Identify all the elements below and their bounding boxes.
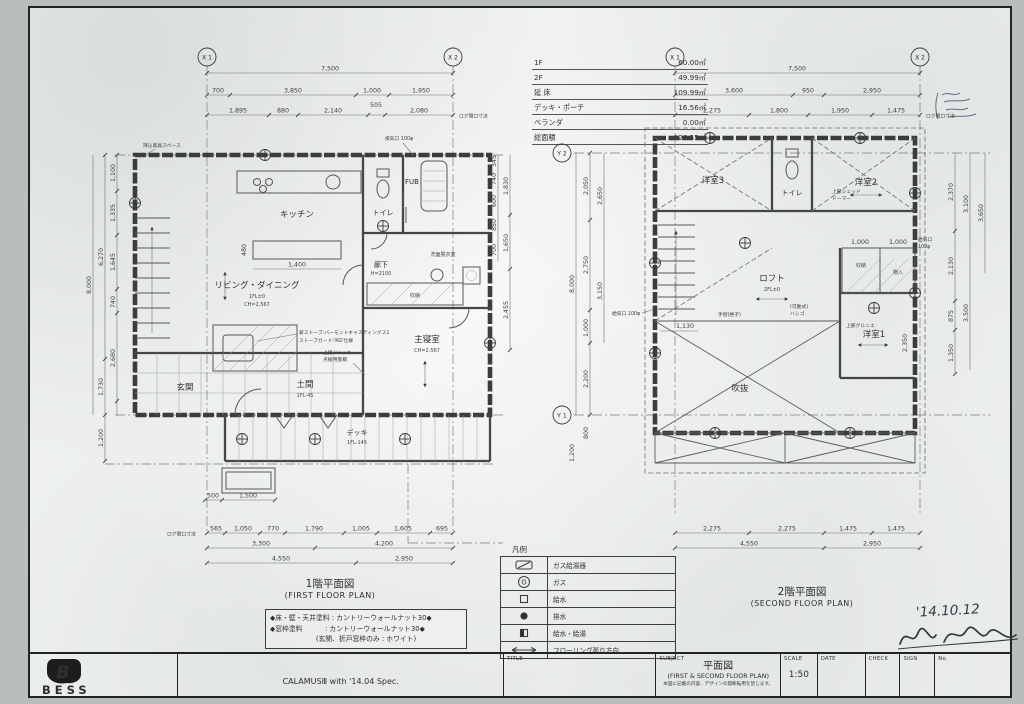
svg-text:3,600: 3,600 (725, 88, 743, 95)
svg-text:3,100: 3,100 (963, 195, 970, 213)
drain-icon (501, 608, 548, 624)
svg-text:CH=2,567: CH=2,567 (244, 302, 270, 308)
svg-text:1,100: 1,100 (110, 164, 117, 182)
sign-cell: SIGN (899, 654, 934, 696)
legend: 凡例 ガス給湯器 G ガス 給水 排水 給 (500, 544, 676, 659)
svg-text:565: 565 (210, 526, 222, 533)
svg-text:4,200: 4,200 (375, 541, 393, 548)
second-floor-plan-title: 2階平面図 (SECOND FLOOR PLAN) (652, 586, 952, 609)
gas-icon: G (501, 574, 548, 590)
room-label-bedroom3: 洋室3 (702, 175, 724, 186)
title-block: B BESS CALAMUSⅢ with '14.04 Spec. TITLE … (30, 652, 1010, 696)
svg-text:1,350: 1,350 (948, 344, 955, 362)
svg-text:2,080: 2,080 (410, 108, 428, 115)
svg-text:G: G (521, 579, 526, 587)
svg-text:2,455: 2,455 (503, 301, 510, 319)
svg-text:770: 770 (267, 526, 279, 533)
legend-row: 排水 (501, 608, 675, 625)
area-label: 延 床 (534, 88, 551, 98)
grid-mark-y1: Y 1 (556, 413, 567, 420)
svg-text:4,550: 4,550 (740, 541, 758, 548)
svg-text:2,275: 2,275 (703, 526, 721, 533)
svg-text:2,140: 2,140 (324, 108, 342, 115)
grenier-note: 上部グルニエ (846, 322, 875, 329)
dimensions-bottom: 565 1,050 770 1,790 1,005 1,605 695 ログ間口… (167, 526, 455, 566)
legend-row: 給水・給湯 (501, 625, 675, 642)
svg-text:1,475: 1,475 (839, 526, 857, 533)
dimensions-top: 7,500 700 3,850 1,000 1,950 1,895 880 2,… (205, 66, 488, 120)
kitchen-fixtures: 1,400 480 (237, 171, 361, 269)
first-floor-plan-title: 1階平面図 (FIRST FLOOR PLAN) (180, 578, 480, 601)
svg-text:2,200: 2,200 (583, 370, 590, 388)
svg-text:ドーマー: ドーマー (832, 196, 851, 202)
svg-text:H=2100: H=2100 (371, 271, 392, 277)
svg-text:1,000: 1,000 (363, 88, 381, 95)
staircase (135, 218, 170, 338)
svg-text:1,830: 1,830 (503, 177, 510, 195)
dormer-note: 上部シェッド (832, 188, 861, 195)
stove-note: 薪ストーブ:バーモントキャスティングス1 (299, 329, 389, 336)
plan1-walls (135, 155, 490, 415)
svg-text:CH=2,567: CH=2,567 (414, 348, 440, 354)
grid-mark-x1: X 1 (202, 55, 212, 62)
hot-cold-water-icon (501, 625, 548, 641)
grid-mark-x2: X 2 (448, 55, 458, 62)
toilet-fixture (786, 149, 798, 179)
svg-text:1,895: 1,895 (229, 108, 247, 115)
deck-area: 500 1,500 (105, 415, 503, 543)
svg-text:2FL±0: 2FL±0 (764, 287, 780, 293)
svg-text:4,550: 4,550 (272, 556, 290, 563)
legend-title: 凡例 (512, 544, 676, 555)
room-label-closet: 収納 (410, 292, 420, 299)
room-label-toilet: トイレ (373, 209, 394, 217)
svg-text:1FL±0: 1FL±0 (249, 294, 265, 300)
product-cell: CALAMUSⅢ with '14.04 Spec. (177, 654, 503, 696)
first-floor-plan-drawing: X 1 X 2 7,500 700 3,850 1,000 1,950 1,89… (85, 43, 520, 618)
title-cell: TITLE (503, 654, 655, 696)
void-and-balcony (655, 321, 915, 463)
plan2-room-labels: 洋室3 洋室2 トイレ ロフト 2FL±0 洋室1 吹抜 収納 物入 (702, 175, 903, 394)
grid-mark-y2: Y 2 (556, 151, 567, 158)
svg-text:1,000: 1,000 (889, 239, 907, 246)
svg-text:2,950: 2,950 (863, 541, 881, 548)
furniture-note: 持込家具スペース (143, 142, 181, 149)
svg-text:505: 505 (370, 102, 382, 109)
svg-text:1,400: 1,400 (288, 262, 306, 269)
svg-text:2,050: 2,050 (583, 177, 590, 195)
svg-text:740: 740 (110, 296, 117, 308)
svg-text:2,275: 2,275 (778, 526, 796, 533)
room-label-loft: ロフト (759, 274, 785, 284)
area-label: 2F (534, 73, 543, 83)
room-label-void: 吹抜 (731, 383, 749, 394)
svg-text:2,350: 2,350 (902, 334, 909, 352)
svg-text:1,500: 1,500 (239, 493, 257, 500)
svg-text:1,950: 1,950 (412, 88, 430, 95)
svg-text:1,000: 1,000 (583, 319, 590, 337)
room-label-bedroom1: 洋室1 (863, 329, 885, 340)
svg-text:1,605: 1,605 (394, 526, 412, 533)
log-opening-note: ログ間口寸法 (167, 531, 196, 538)
jack-note: 点検用蓋箱 (323, 356, 347, 363)
svg-text:1,475: 1,475 (887, 526, 905, 533)
bess-logo-icon: B (44, 657, 84, 685)
plan1-room-labels: キッチン リビング・ダイニング 1FL±0 CH=2,567 主寝室 CH=2,… (176, 178, 455, 446)
water-supply-icon (501, 591, 548, 607)
dimensions-left: 8,000 6,270 1,730 1,200 1,100 1,335 1,64… (86, 153, 119, 463)
exhaust-vent-note: 排気口 100φ (385, 135, 413, 142)
svg-text:1,200: 1,200 (569, 444, 576, 462)
drawing-sheet: 1F 60.00㎡ 2F 49.99㎡ 延 床 109.99㎡ デッキ・ポーチ … (28, 6, 1012, 698)
svg-text:ハシゴ: ハシゴ (790, 310, 805, 317)
room-label-genkan: 玄関 (176, 382, 193, 393)
plan2-walls (645, 128, 925, 473)
svg-text:3,650: 3,650 (978, 204, 985, 222)
svg-text:875: 875 (948, 310, 955, 322)
ladder-note: (可動式) (790, 303, 808, 310)
svg-text:7,500: 7,500 (788, 66, 806, 73)
handwritten-signature (890, 618, 1024, 656)
room-label-toilet: トイレ (782, 189, 803, 197)
finish-spec-notes: ◆床・壁・天井塗料 : カントリーウォールナット30◆ ◆窓枠塗料 : カントリ… (265, 609, 467, 649)
room-label-kitchen: キッチン (280, 210, 314, 220)
svg-text:100φ: 100φ (918, 244, 930, 250)
svg-text:800: 800 (583, 427, 590, 439)
grid-mark-x1: X 1 (670, 55, 680, 62)
subject-cell: SUBJECT 平面図 (FIRST & SECOND FLOOR PLAN) … (655, 654, 779, 696)
room-label-bath: FUB (405, 178, 419, 186)
legend-row: ガス給湯器 (501, 557, 675, 574)
svg-text:1,000: 1,000 (851, 239, 869, 246)
room-label-washroom: 洗面脱衣室 (430, 251, 455, 258)
svg-text:1,800: 1,800 (770, 108, 788, 115)
date-cell: DATE (817, 654, 865, 696)
svg-text:6,270: 6,270 (98, 248, 105, 266)
number-cell: No. (934, 654, 1010, 696)
svg-text:3,500: 3,500 (963, 304, 970, 322)
scale-value: 1:50 (781, 670, 817, 680)
svg-text:2,950: 2,950 (395, 556, 413, 563)
svg-text:1,650: 1,650 (503, 234, 510, 252)
plan1-annotations: 排気口 100φ 持込家具スペース (143, 135, 413, 155)
svg-text:2,275: 2,275 (703, 108, 721, 115)
dimensions-left: 8,000 2,050 2,750 1,000 2,200 2,650 3,15… (569, 151, 604, 462)
gas-heater-icon (501, 557, 548, 573)
room-label-living-dining: リビング・ダイニング (214, 280, 300, 291)
brand-name: BESS (42, 683, 91, 697)
svg-text:1,130: 1,130 (676, 323, 694, 330)
svg-text:3,850: 3,850 (284, 88, 302, 95)
svg-text:700: 700 (212, 88, 224, 95)
check-cell: CHECK (865, 654, 900, 696)
svg-text:3,150: 3,150 (597, 282, 604, 300)
window-symbols (130, 150, 496, 445)
room-label-doma: 土間 (296, 379, 313, 390)
room-label-bedroom2: 洋室2 (855, 177, 877, 188)
svg-text:695: 695 (436, 526, 448, 533)
svg-text:1FL-145: 1FL-145 (347, 440, 367, 446)
svg-text:1,005: 1,005 (352, 526, 370, 533)
dimensions-top: 7,500 3,600 950 2,950 2,275 1,800 1,950 … (673, 66, 955, 120)
dimensions-bottom: 2,275 2,275 1,475 1,475 4,550 2,950 (673, 526, 922, 551)
room-label-hall: 廊下 (374, 260, 388, 269)
svg-text:2,650: 2,650 (597, 187, 604, 205)
legend-row: 給水 (501, 591, 675, 608)
log-opening-note: ログ間口寸法 (926, 113, 955, 120)
scale-cell: SCALE 1:50 (780, 654, 817, 696)
product-name: CALAMUSⅢ with '14.04 Spec. (178, 677, 503, 686)
legend-row: G ガス (501, 574, 675, 591)
svg-text:1,475: 1,475 (887, 108, 905, 115)
svg-text:8,000: 8,000 (569, 275, 576, 293)
svg-text:1,950: 1,950 (831, 108, 849, 115)
area-label: 1F (534, 58, 543, 68)
svg-text:2,680: 2,680 (110, 349, 117, 367)
svg-text:950: 950 (802, 88, 814, 95)
svg-text:1,730: 1,730 (98, 378, 105, 396)
svg-text:3,300: 3,300 (252, 541, 270, 548)
brand-logo-cell: B BESS (30, 654, 177, 696)
room-label-storage: 物入 (893, 269, 903, 276)
svg-text:880: 880 (277, 108, 289, 115)
second-floor-plan-drawing: X 1 X 2 Y 2 Y 1 7,500 3,600 950 2,950 2,… (550, 43, 1015, 618)
svg-text:2,130: 2,130 (948, 257, 955, 275)
svg-text:1,645: 1,645 (110, 253, 117, 271)
grid-mark-x2: X 2 (915, 55, 925, 62)
supply-vent-note: 給気口 100φ (612, 310, 640, 317)
svg-text:500: 500 (207, 493, 219, 500)
svg-text:1,200: 1,200 (98, 429, 105, 447)
room-label-master-bedroom: 主寝室 (414, 334, 440, 345)
jack-note: 上屋ジャッキ (323, 349, 352, 356)
room-label-closet: 収納 (856, 262, 866, 269)
handrail-note: 手摺(格子) (718, 311, 741, 318)
svg-text:480: 480 (241, 244, 248, 256)
log-opening-note: ログ間口寸法 (459, 113, 488, 120)
svg-text:1,790: 1,790 (305, 526, 323, 533)
svg-text:7,500: 7,500 (321, 66, 339, 73)
svg-text:8,000: 8,000 (86, 276, 93, 294)
room-label-deck: デッキ (347, 428, 368, 437)
svg-text:1FL-45: 1FL-45 (297, 393, 314, 399)
dimensions-right: 345 740 600 850 700 1,830 1,650 2,455 (491, 155, 512, 352)
svg-text:2,370: 2,370 (948, 183, 955, 201)
svg-text:2,950: 2,950 (863, 88, 881, 95)
svg-text:1,335: 1,335 (110, 204, 117, 222)
svg-text:1,050: 1,050 (234, 526, 252, 533)
flooring-direction-arrows (756, 195, 888, 345)
stove-guard-note: ストーブガード:'KG'仕様 (299, 337, 353, 344)
svg-text:B: B (57, 663, 70, 683)
dimensions-right: 2,370 2,130 875 1,350 3,100 3,500 3,650 … (918, 153, 985, 376)
svg-text:2,750: 2,750 (583, 256, 590, 274)
